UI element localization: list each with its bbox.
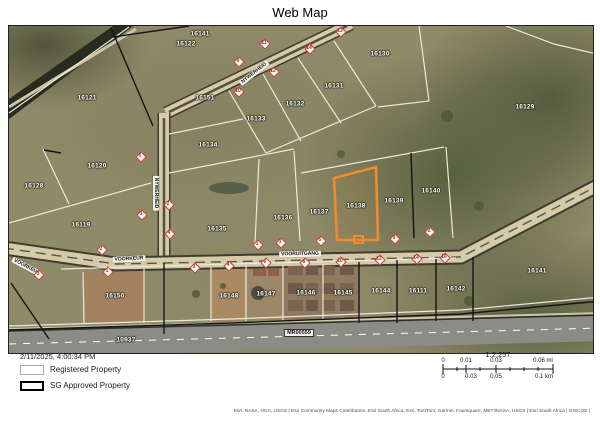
stand-number-4: 4 xyxy=(224,261,232,269)
stand-number-5: 5 xyxy=(316,236,324,244)
stand-number-12: 12 xyxy=(269,67,277,75)
road-label-voorkeur: VOORKEUR xyxy=(112,255,145,263)
parcel-label-16111: 16111 xyxy=(409,288,427,295)
stand-number-9: 9 xyxy=(390,234,398,242)
stand-number-10: 10 xyxy=(336,257,344,265)
scalebar-km-label: 0.1 km xyxy=(535,374,553,380)
stand-number-11: 11 xyxy=(260,39,268,47)
legend-label: SG Approved Property xyxy=(50,381,130,390)
parcel-label-16148: 16148 xyxy=(219,293,238,300)
parcel-label-16132: 16132 xyxy=(285,101,304,108)
stand-number-10: 10 xyxy=(234,87,242,95)
parcel-label-16120: 16120 xyxy=(87,163,106,170)
stand-number-13: 13 xyxy=(336,27,344,35)
stand-number-3: 3 xyxy=(276,238,284,246)
parcel-label-16144: 16144 xyxy=(371,288,390,295)
stand-number-3: 3 xyxy=(137,210,145,218)
parcel-label-16151: 16151 xyxy=(195,95,214,102)
parcel-label-16122: 16122 xyxy=(176,41,195,48)
parcel-label-16140: 16140 xyxy=(421,188,440,195)
attribution-text: Esri, NASA, NGA, USGS | Esri Community M… xyxy=(234,409,590,414)
stand-number-9: 9 xyxy=(234,57,242,65)
parcel-label-16129: 16129 xyxy=(515,104,534,111)
stand-number-2: 2 xyxy=(425,227,433,235)
map-canvas[interactable]: 1614116122161301612116151161311613216133… xyxy=(8,25,594,354)
road-label-nywerheid: NYWERHEID xyxy=(153,176,159,211)
parcel-label-16139: 16139 xyxy=(384,198,403,205)
stand-number-1: 1 xyxy=(103,267,111,275)
parcel-label-16136: 16136 xyxy=(273,215,292,222)
scalebar-ticks xyxy=(443,364,553,374)
stand-number-2: 2 xyxy=(97,245,105,253)
page-title: Web Map xyxy=(0,5,600,20)
parcel-label-16128: 16128 xyxy=(24,183,43,190)
parcel-label-16121: 16121 xyxy=(77,95,96,102)
stand-number-14: 14 xyxy=(412,254,420,262)
parcel-label-16135: 16135 xyxy=(207,226,226,233)
parcel-label-16119: 16119 xyxy=(72,222,91,229)
parcel-label-16137: 16137 xyxy=(309,209,328,216)
sg-approved-property-swatch xyxy=(20,381,44,391)
stand-number-4: 4 xyxy=(165,229,173,237)
stand-number-5: 5 xyxy=(136,152,144,160)
parcel-label-16141: 16141 xyxy=(190,31,209,38)
parcel-label-16134: 16134 xyxy=(198,142,217,149)
stand-number-8: 8 xyxy=(300,258,308,266)
parcel-label-16130: 16130 xyxy=(370,51,389,58)
parcel-label-16145: 16145 xyxy=(333,290,352,297)
parcel-label-16141: 16141 xyxy=(527,268,546,275)
stand-number-14: 14 xyxy=(305,44,313,52)
stand-number-1: 1 xyxy=(253,240,261,248)
route-marker-mr00559: MR00559 xyxy=(284,329,314,337)
scalebar-km-label: 0.05 xyxy=(490,374,502,380)
parcel-label-16150: 16150 xyxy=(105,293,124,300)
scalebar-km-label: 0 xyxy=(441,374,444,380)
parcel-label-16142: 16142 xyxy=(446,286,465,293)
stand-number-3: 3 xyxy=(34,270,42,278)
scalebar-km-label: 0.03 xyxy=(465,374,477,380)
parcel-label-16146: 16146 xyxy=(296,290,315,297)
map-labels-layer: 1614116122161301612116151161311613216133… xyxy=(9,26,593,353)
parcel-label-16131: 16131 xyxy=(324,83,343,90)
stand-number-12: 12 xyxy=(375,255,383,263)
scale-ratio: 1:2,257 xyxy=(443,350,553,359)
stand-number-2: 2 xyxy=(190,263,198,271)
parcel-label-16138: 16138 xyxy=(346,203,365,210)
parcel-label-10937: 10937 xyxy=(116,337,135,344)
stand-number-16: 16 xyxy=(440,253,448,261)
registered-property-swatch xyxy=(20,365,44,375)
parcel-label-16147: 16147 xyxy=(256,291,275,298)
stand-number-6: 6 xyxy=(261,258,269,266)
parcel-label-16133: 16133 xyxy=(246,116,265,123)
web-map-page: Web Map xyxy=(0,0,600,424)
stand-number-2: 2 xyxy=(164,200,172,208)
timestamp: 2/11/2025, 4:00:34 PM xyxy=(20,352,95,361)
legend-label: Registered Property xyxy=(50,365,121,374)
road-label-nywerheid: NYWERHEID xyxy=(239,60,270,86)
road-label-vooruitgang: VOORUITGANG xyxy=(279,251,321,258)
